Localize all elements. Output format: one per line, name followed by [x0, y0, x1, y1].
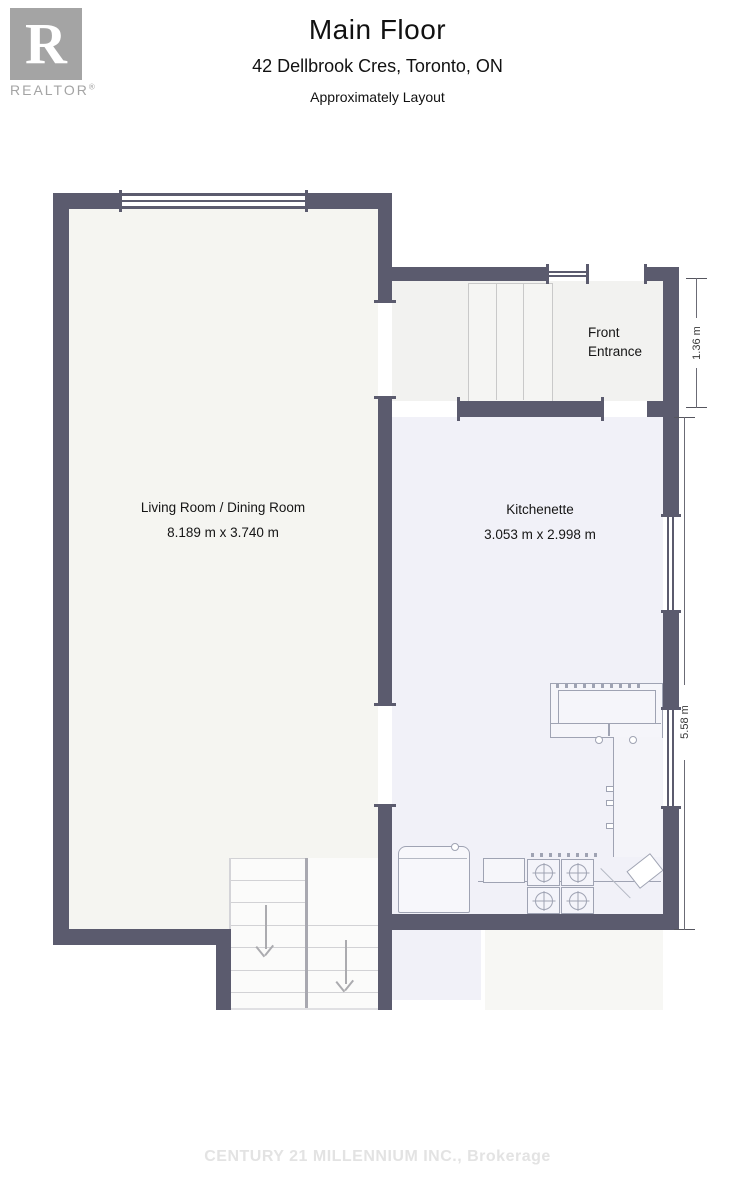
counter-tick [606, 786, 614, 792]
room-name: Living Room / Dining Room [141, 500, 305, 515]
wall-tick [374, 396, 396, 399]
counter-detail [556, 684, 644, 688]
window-mullion [549, 275, 586, 277]
room-name: Kitchenette [484, 502, 596, 517]
closet-door-divider [496, 283, 497, 400]
room-label-kitchenette: Kitchenette 3.053 m x 2.998 m [484, 502, 596, 542]
stair-step [308, 947, 378, 948]
stairs-edge [229, 858, 231, 929]
room-name: Entrance [588, 342, 642, 361]
room-dimensions: 3.053 m x 2.998 m [484, 527, 596, 542]
stairs-divider [305, 858, 308, 1010]
brokerage-watermark: CENTURY 21 MILLENNIUM INC., Brokerage [0, 1148, 755, 1166]
window-cap [305, 190, 308, 212]
room-label-living-dining: Living Room / Dining Room 8.189 m x 3.74… [141, 500, 305, 540]
stair-step [231, 925, 305, 926]
stair-step [231, 992, 305, 993]
window-mullion [549, 271, 586, 273]
wall-segment [647, 401, 679, 417]
stair-step [308, 970, 378, 971]
wall-tick [457, 397, 460, 421]
stair-step [231, 902, 305, 903]
dimension-line [696, 278, 697, 318]
dimension-line [684, 760, 685, 930]
wall-segment [378, 930, 392, 1010]
stair-step [231, 947, 305, 948]
stair-step [231, 880, 305, 881]
room-dimensions: 8.189 m x 3.740 m [141, 525, 305, 540]
wall-tick [374, 300, 396, 303]
appliance-knob [451, 843, 459, 851]
stove-burner-icon [527, 859, 560, 886]
dimension-label: 1.36 m [691, 326, 703, 360]
window-cap [661, 610, 681, 613]
kitchen-counter-right [613, 737, 662, 857]
appliance-detail [399, 858, 467, 859]
floor-patch [485, 930, 663, 1010]
stair-step [231, 858, 305, 859]
wall-segment [378, 398, 392, 706]
closet-door-divider [523, 283, 524, 400]
window-cap [661, 806, 681, 809]
room-label-front-entrance: Front Entrance [588, 323, 642, 361]
window [663, 517, 679, 612]
wall-segment [216, 929, 231, 1010]
counter-tick [606, 823, 614, 829]
dimension-line [696, 368, 697, 408]
counter-edge [550, 723, 661, 724]
stove-burner-icon [527, 887, 560, 914]
window [549, 268, 586, 280]
window-mullion [667, 710, 669, 808]
faucet-knob [595, 736, 603, 744]
window-cap [119, 190, 122, 212]
wall-tick [374, 703, 396, 706]
counter-tick [608, 723, 610, 736]
wall-segment [663, 808, 679, 930]
living-room-floor [69, 209, 378, 929]
wall-segment [378, 804, 392, 930]
window-mullion [672, 517, 674, 612]
floor-patch [392, 930, 481, 1000]
floor-plan: 1.36 m 5.58 m Living Room / Dining Room … [0, 0, 755, 1200]
window-mullion [122, 200, 305, 202]
wall-tick [601, 397, 604, 421]
wall-tick [644, 264, 647, 284]
counter-tick [606, 800, 614, 806]
dishwasher [483, 858, 525, 883]
stove-back-panel [531, 853, 597, 857]
wall-segment [663, 612, 679, 710]
stair-step [231, 970, 305, 971]
window-cap [661, 514, 681, 517]
stairs-down-arrow-icon [265, 905, 267, 949]
closet [468, 283, 553, 402]
window-mullion [672, 710, 674, 808]
wall-segment [53, 193, 69, 945]
stairs-bottom-edge [231, 1008, 378, 1010]
wall-segment [460, 401, 601, 417]
wall-segment [378, 914, 679, 930]
room-name: Front [588, 323, 642, 342]
window-mullion [667, 517, 669, 612]
wall-segment [663, 417, 679, 517]
wall-segment [663, 267, 679, 417]
dimension-label: 5.58 m [679, 705, 691, 739]
wall-segment [378, 193, 392, 303]
stove-burner-icon [561, 859, 594, 886]
wall-tick [374, 804, 396, 807]
wall-segment [53, 929, 231, 945]
appliance-washer [398, 846, 470, 913]
stair-step [308, 925, 378, 926]
wall-tick [586, 264, 589, 284]
wall-segment [391, 267, 548, 281]
dimension-line [684, 417, 685, 685]
kitchen-counter-inner [558, 690, 656, 724]
window-cap [661, 707, 681, 710]
window [663, 710, 679, 808]
stairs-down-arrow-icon [345, 940, 347, 984]
faucet-knob [629, 736, 637, 744]
floorplan-page: R REALTOR® Main Floor 42 Dellbrook Cres,… [0, 0, 755, 1200]
stove-burner-icon [561, 887, 594, 914]
